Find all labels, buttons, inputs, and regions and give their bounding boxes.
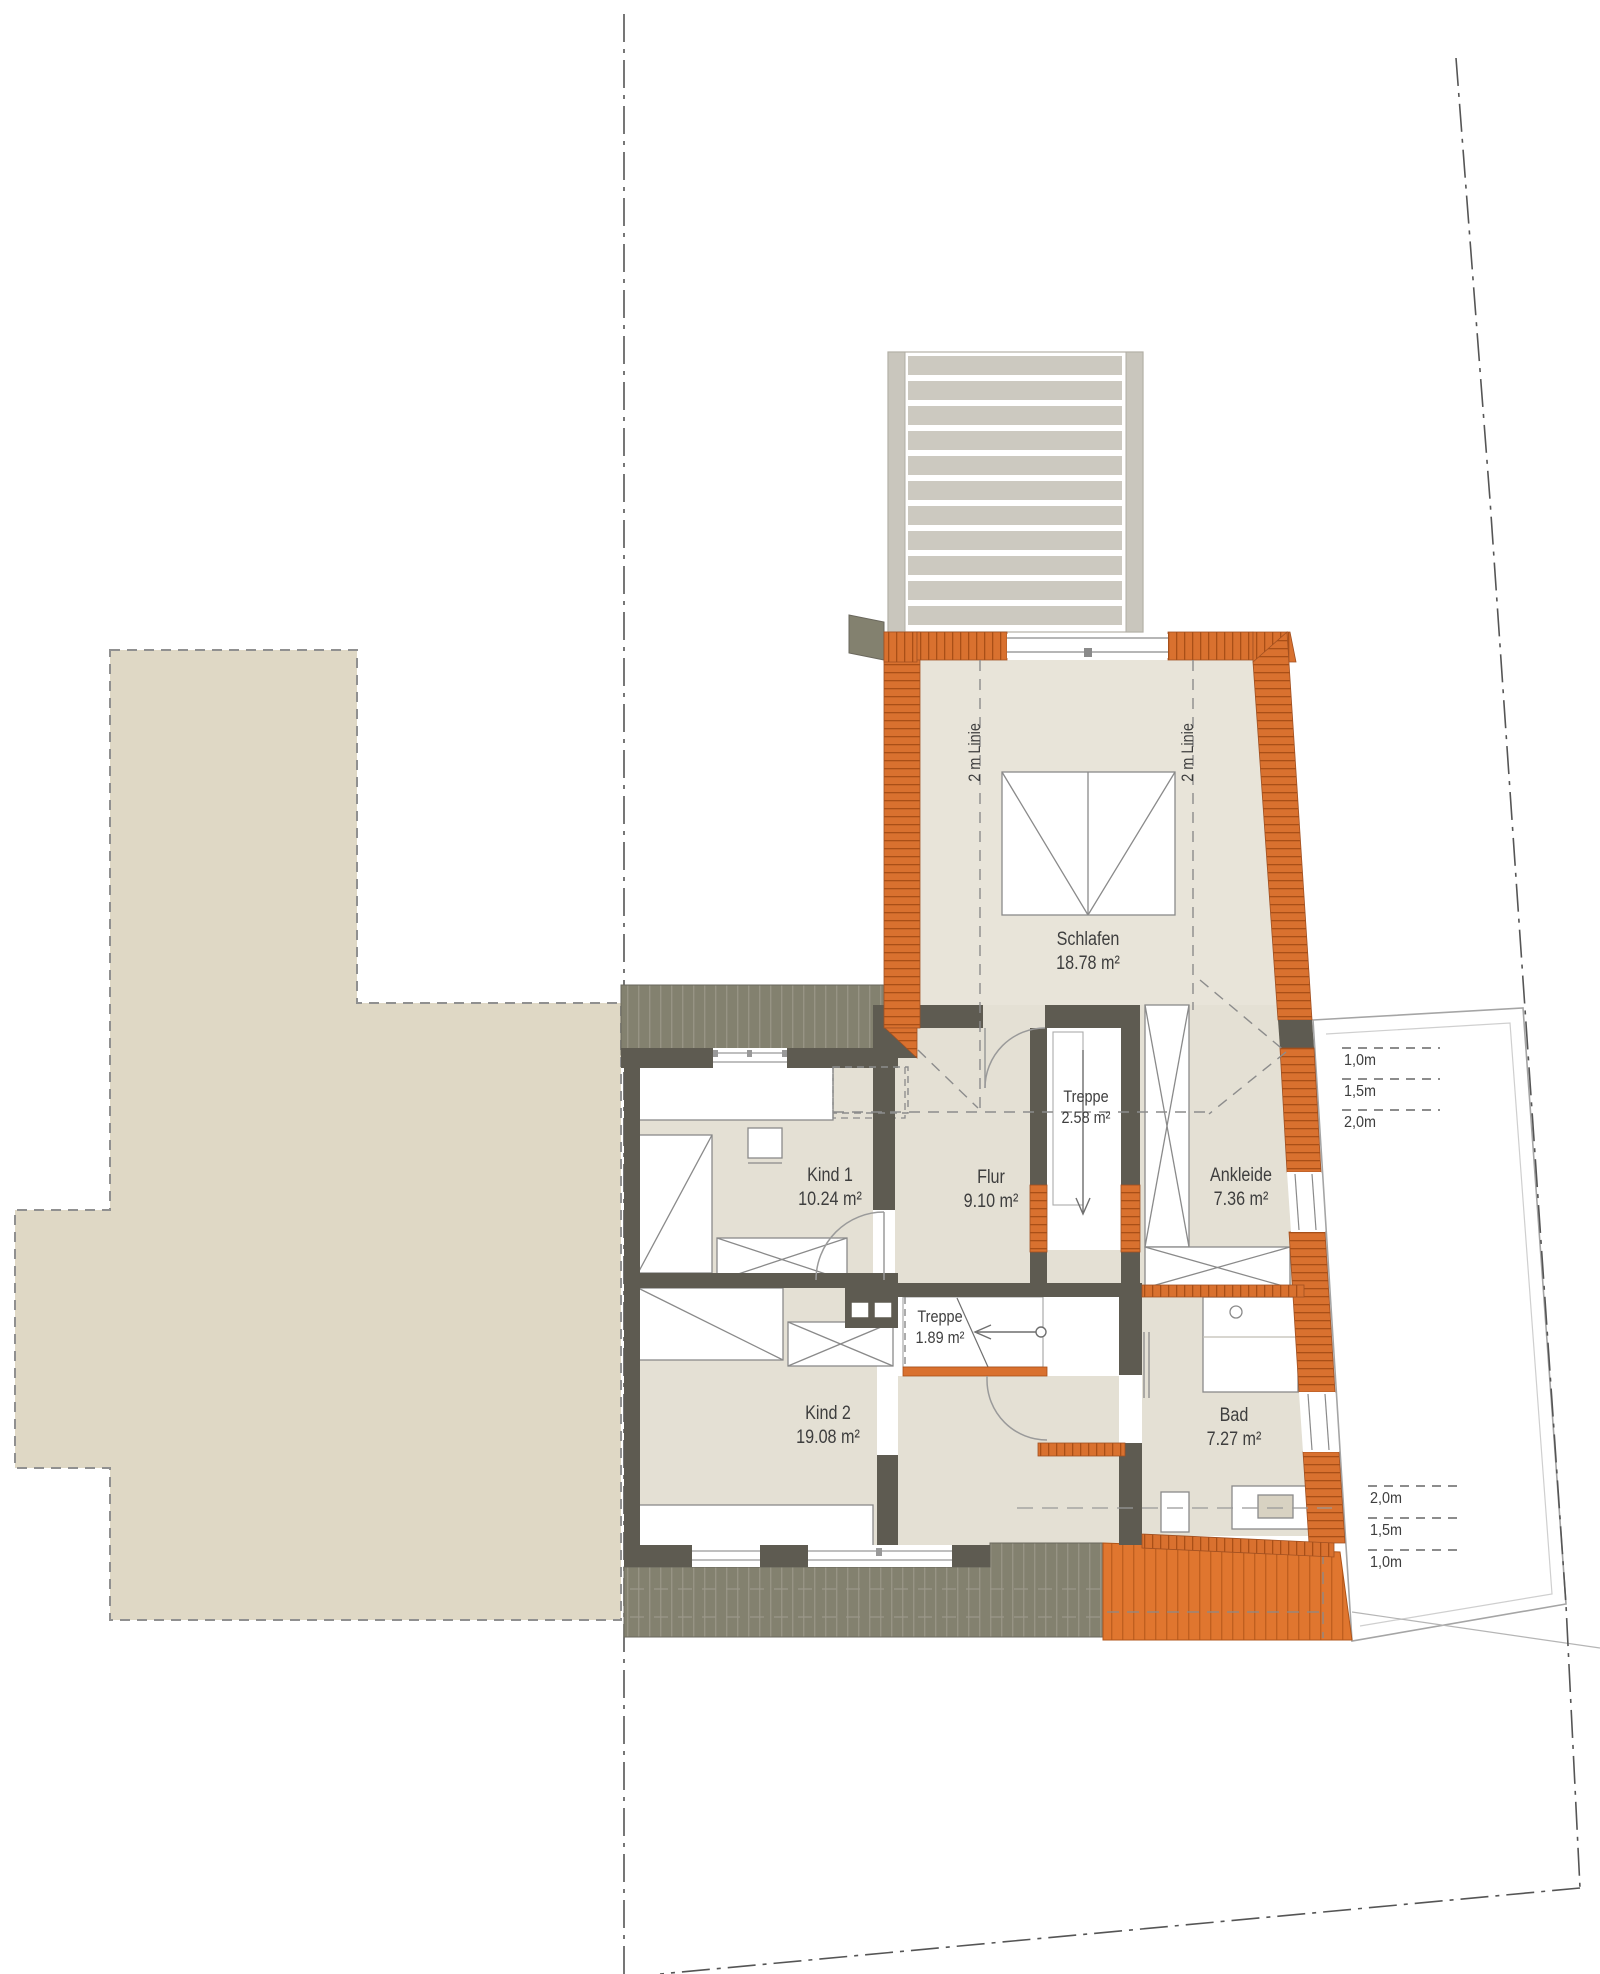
shower-bad xyxy=(1203,1297,1298,1392)
two-meter-line-label-left: 2 m Linie xyxy=(965,688,985,782)
room-name: Schlafen xyxy=(1029,928,1148,952)
room-area: 18.78 m² xyxy=(1029,952,1148,976)
floor-landing xyxy=(898,1376,1119,1545)
room-label-bad: Bad 7.27 m² xyxy=(1175,1404,1294,1452)
bed-schlafen xyxy=(1002,772,1175,915)
height-mark-lower-3: 1,0m xyxy=(1370,1554,1402,1572)
two-meter-line-label-right: 2 m Linie xyxy=(1178,688,1198,782)
height-mark-lower-2: 1,5m xyxy=(1370,1522,1402,1540)
property-line-bottom xyxy=(660,1888,1580,1974)
room-name: Kind 1 xyxy=(771,1164,890,1188)
closet-kind1 xyxy=(638,1065,833,1120)
roof-hatch-orange xyxy=(1103,1543,1352,1640)
deck-slats xyxy=(908,356,1122,625)
nightstand-kind1 xyxy=(748,1128,782,1163)
bed-kind2 xyxy=(638,1288,783,1360)
bed-kind1 xyxy=(638,1135,712,1273)
window-kind2-south-left xyxy=(692,1545,760,1567)
room-label-kind2: Kind 2 19.08 m² xyxy=(769,1402,888,1450)
wardrobe-ankleide-low xyxy=(1145,1247,1290,1288)
room-name: Ankleide xyxy=(1182,1164,1301,1188)
room-area: 7.27 m² xyxy=(1175,1428,1294,1452)
room-area: 1.89 m² xyxy=(887,1327,992,1348)
room-label-ankleide: Ankleide 7.36 m² xyxy=(1182,1164,1301,1212)
wall-dormer-north-right xyxy=(1168,632,1253,660)
stair-lower-orange-edge xyxy=(903,1367,1047,1376)
room-name: Bad xyxy=(1175,1404,1294,1428)
height-mark-upper-1: 1,0m xyxy=(1344,1052,1376,1070)
window-kind1-north xyxy=(713,1048,787,1068)
neighbor-building-footprint xyxy=(15,650,621,1620)
wall-east-lower xyxy=(1303,1452,1345,1543)
room-label-kind1: Kind 1 10.24 m² xyxy=(771,1164,890,1212)
room-name: Flur xyxy=(932,1166,1051,1190)
stairwell-upper xyxy=(1047,1028,1121,1250)
room-area: 10.24 m² xyxy=(771,1188,890,1212)
room-label-treppe-upper: Treppe 2.58 m² xyxy=(1033,1086,1138,1128)
room-area: 2.58 m² xyxy=(1033,1107,1138,1128)
room-label-treppe-lower: Treppe 1.89 m² xyxy=(887,1306,992,1348)
desk-kind2 xyxy=(638,1505,873,1552)
room-label-schlafen: Schlafen 18.78 m² xyxy=(1029,928,1148,976)
room-area: 19.08 m² xyxy=(769,1426,888,1450)
dresser-kind2 xyxy=(788,1322,893,1366)
side-roof-outline xyxy=(1313,1008,1600,1648)
window-kind2-south-right xyxy=(808,1545,952,1567)
height-mark-upper-3: 2,0m xyxy=(1344,1114,1376,1132)
room-name: Kind 2 xyxy=(769,1402,888,1426)
window-bad-east xyxy=(1299,1392,1339,1452)
room-name: Treppe xyxy=(1033,1086,1138,1107)
height-mark-lower-1: 2,0m xyxy=(1370,1490,1402,1508)
room-name: Treppe xyxy=(887,1306,992,1327)
room-area: 9.10 m² xyxy=(932,1190,1051,1214)
window-schlafen-north xyxy=(1007,634,1168,658)
floor-plan-canvas: Schlafen 18.78 m² Kind 1 10.24 m² Flur 9… xyxy=(0,0,1600,1974)
floor-plan-drawing xyxy=(0,0,1600,1974)
wall-dormer-north-left xyxy=(917,632,1007,660)
wall-dormer-west xyxy=(884,632,920,1028)
wc-bad xyxy=(1161,1492,1189,1532)
room-area: 7.36 m² xyxy=(1182,1188,1301,1212)
height-mark-upper-2: 1,5m xyxy=(1344,1083,1376,1101)
room-label-flur: Flur 9.10 m² xyxy=(932,1166,1051,1214)
roof-deck xyxy=(888,352,1143,632)
